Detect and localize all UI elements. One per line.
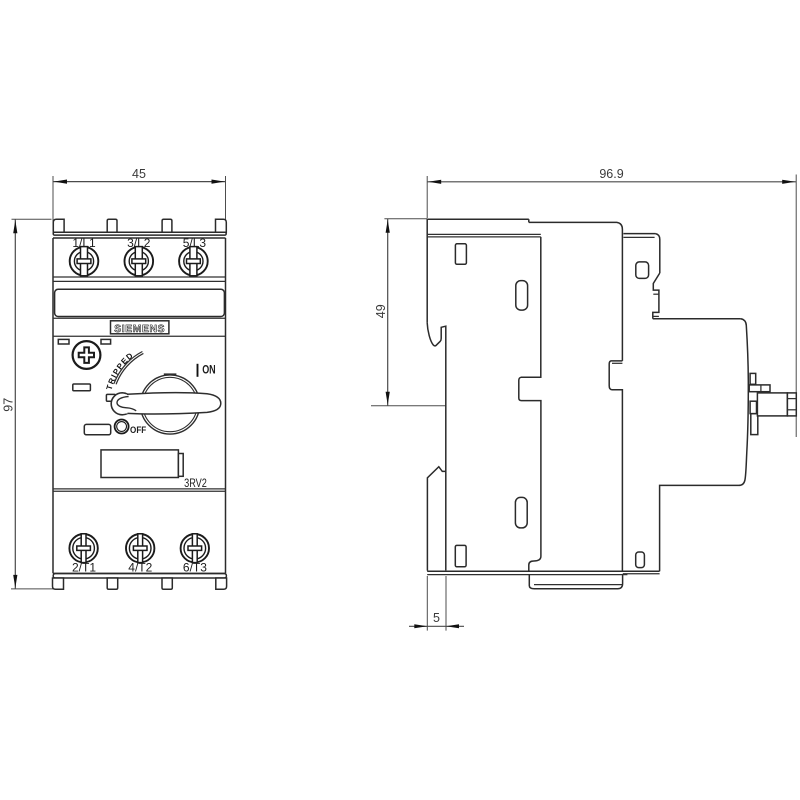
svg-text:ON: ON xyxy=(202,363,215,377)
svg-text:OFF: OFF xyxy=(130,424,147,435)
svg-text:97: 97 xyxy=(1,398,15,412)
svg-text:45: 45 xyxy=(132,167,146,181)
svg-text:4/T2: 4/T2 xyxy=(128,561,152,575)
svg-text:2/T1: 2/T1 xyxy=(72,561,96,575)
svg-text:49: 49 xyxy=(374,304,388,318)
svg-text:6/T3: 6/T3 xyxy=(183,561,207,575)
svg-text:SIEMENS: SIEMENS xyxy=(114,322,165,334)
svg-text:5: 5 xyxy=(433,611,440,625)
svg-text:96.9: 96.9 xyxy=(599,167,623,181)
